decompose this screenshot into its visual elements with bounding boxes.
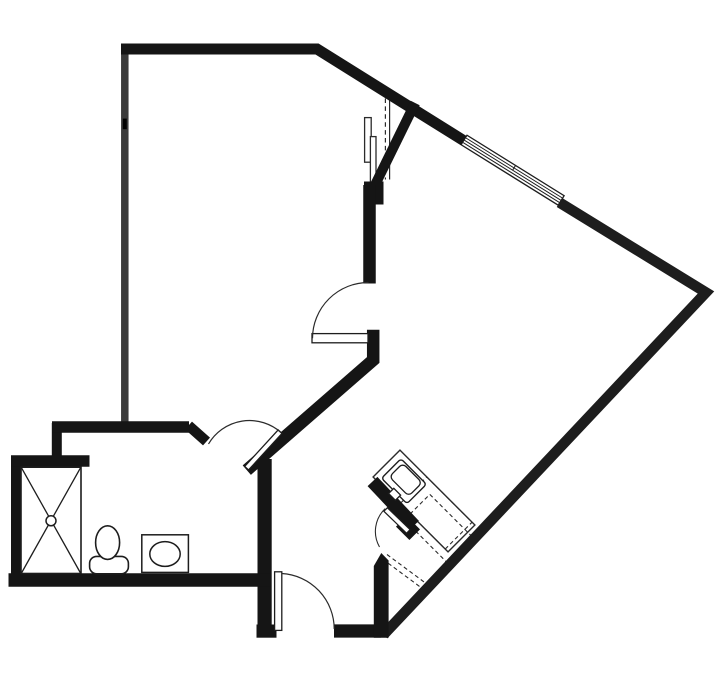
wall-left-tick <box>123 119 127 130</box>
entry-door-leaf <box>275 572 282 631</box>
floor-plan-page <box>0 0 720 690</box>
entry-door-swing-arc <box>282 574 334 630</box>
floor-plan-drawing <box>0 0 720 690</box>
wall-closet-branch <box>376 108 414 185</box>
wall-entry-left-foot <box>257 625 277 638</box>
wall-right-diagonals <box>384 203 707 635</box>
center-door-leaf <box>312 334 368 343</box>
cabinet-dashed-line-a <box>387 555 428 585</box>
kitchen-closet-door-swing-arc <box>375 509 385 547</box>
wall-top-and-upper-diagonal <box>121 49 464 141</box>
wall-entry-cap <box>374 553 389 638</box>
center-door-swing-arc <box>313 282 369 338</box>
window-glazing-line-3 <box>463 143 559 203</box>
bathroom-sink-basin <box>150 542 180 567</box>
shower-drain <box>46 516 56 526</box>
toilet-bowl <box>96 526 120 560</box>
wall-bathroom-door-stub <box>189 426 207 442</box>
